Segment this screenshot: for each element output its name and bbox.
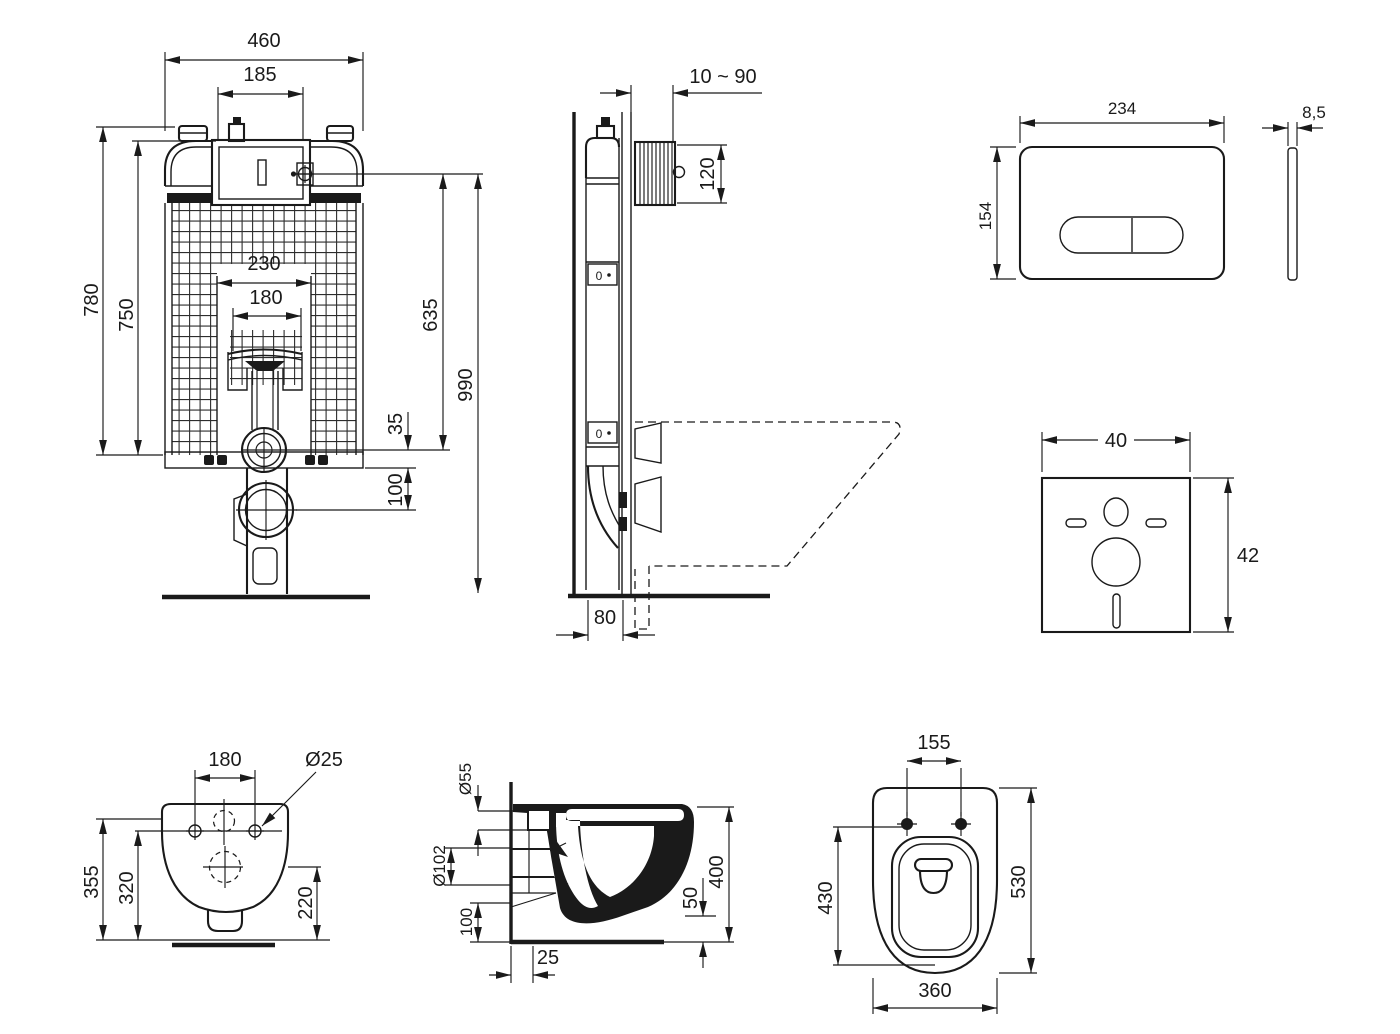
bowl-rear-view: 180 Ø25 355 320 220 <box>81 749 343 945</box>
dim-plate-width-label: 234 <box>1108 99 1136 118</box>
technical-drawing-sheet: 460 185 780 750 230 180 635 990 35 100 <box>0 0 1400 1034</box>
installation-drawing: 460 185 780 750 230 180 635 990 35 100 <box>0 0 1400 1034</box>
dim-outlet-height-label: 100 <box>457 908 476 936</box>
tank-side-profile <box>586 138 619 178</box>
flush-plate-front <box>1020 147 1224 279</box>
frame-side-view: 0 0 <box>556 66 900 641</box>
dim-inlet-diameter-label: Ø55 <box>456 763 475 795</box>
dim-tank-height-label: 750 <box>116 298 138 331</box>
bowl-top-view: 155 430 530 360 <box>815 732 1037 1014</box>
seat-opening-outer <box>892 837 978 957</box>
dim-seat-hole-spacing-label: 155 <box>917 732 950 754</box>
mounting-hole-left <box>186 822 204 840</box>
dim-holes-height-label: 320 <box>116 871 138 904</box>
dim-access-width-label: 185 <box>243 64 276 86</box>
dim-inlet-height-label: 355 <box>81 865 103 898</box>
dim-plate-thickness-label: 8,5 <box>1302 103 1326 122</box>
bowl-side-view: Ø55 Ø102 100 25 50 400 <box>430 763 734 983</box>
marker-label: 0 <box>596 269 603 283</box>
dim-base-depth-label: 80 <box>594 607 616 629</box>
flush-plate-view: 234 154 8,5 <box>976 99 1326 280</box>
sound-mat-view: 40 42 <box>1042 430 1259 632</box>
flush-buttons <box>1060 217 1183 253</box>
dim-outlet-height-label: 220 <box>295 886 317 919</box>
dim-hole-spacing-label: 180 <box>208 749 241 771</box>
mounting-hole-right <box>246 822 264 840</box>
dim-plate-height-label: 154 <box>976 202 995 230</box>
dim-cutout-width-label: 230 <box>247 253 280 275</box>
dim-mat-height-label: 42 <box>1237 545 1259 567</box>
flush-pipe-outlet <box>242 428 286 472</box>
dim-total-width-label: 460 <box>247 30 280 52</box>
dim-total-height-label: 990 <box>455 368 477 401</box>
flush-distributor <box>915 859 952 893</box>
dim-depth-adjust-label: 10 ~ 90 <box>689 66 756 88</box>
dim-outlet-diameter-label: Ø102 <box>430 845 449 887</box>
dim-inlet-height-label: 120 <box>697 157 719 190</box>
dim-outlet-drop-label: 100 <box>385 473 407 506</box>
dim-total-length-label: 530 <box>1008 865 1030 898</box>
dim-depth-label: 400 <box>706 855 728 888</box>
dim-bowl-width-label: 360 <box>918 980 951 1002</box>
dim-frame-height-label: 780 <box>81 283 103 316</box>
dim-clearance-label: 50 <box>680 887 702 909</box>
dim-wall-offset-label: 25 <box>537 947 559 969</box>
dim-pipe-width-label: 180 <box>249 287 282 309</box>
dim-outlet-offset-label: 35 <box>385 413 407 435</box>
flush-plate-side <box>1288 148 1297 280</box>
dim-mat-width-label: 40 <box>1105 430 1127 452</box>
marker-label: 0 <box>596 427 603 441</box>
sound-mat <box>1042 478 1190 632</box>
dim-bowl-length-label: 430 <box>815 881 837 914</box>
fixing-marker-upper: 0 <box>588 264 617 285</box>
inlet-hose <box>635 142 685 205</box>
dim-inlet-height-label: 635 <box>420 298 442 331</box>
cistern-front-view: 460 185 780 750 230 180 635 990 35 100 <box>81 30 483 597</box>
seat-fixing-holes <box>897 812 971 836</box>
fixing-marker-lower: 0 <box>588 422 617 443</box>
dim-hole-diameter-label: Ø25 <box>305 749 343 771</box>
